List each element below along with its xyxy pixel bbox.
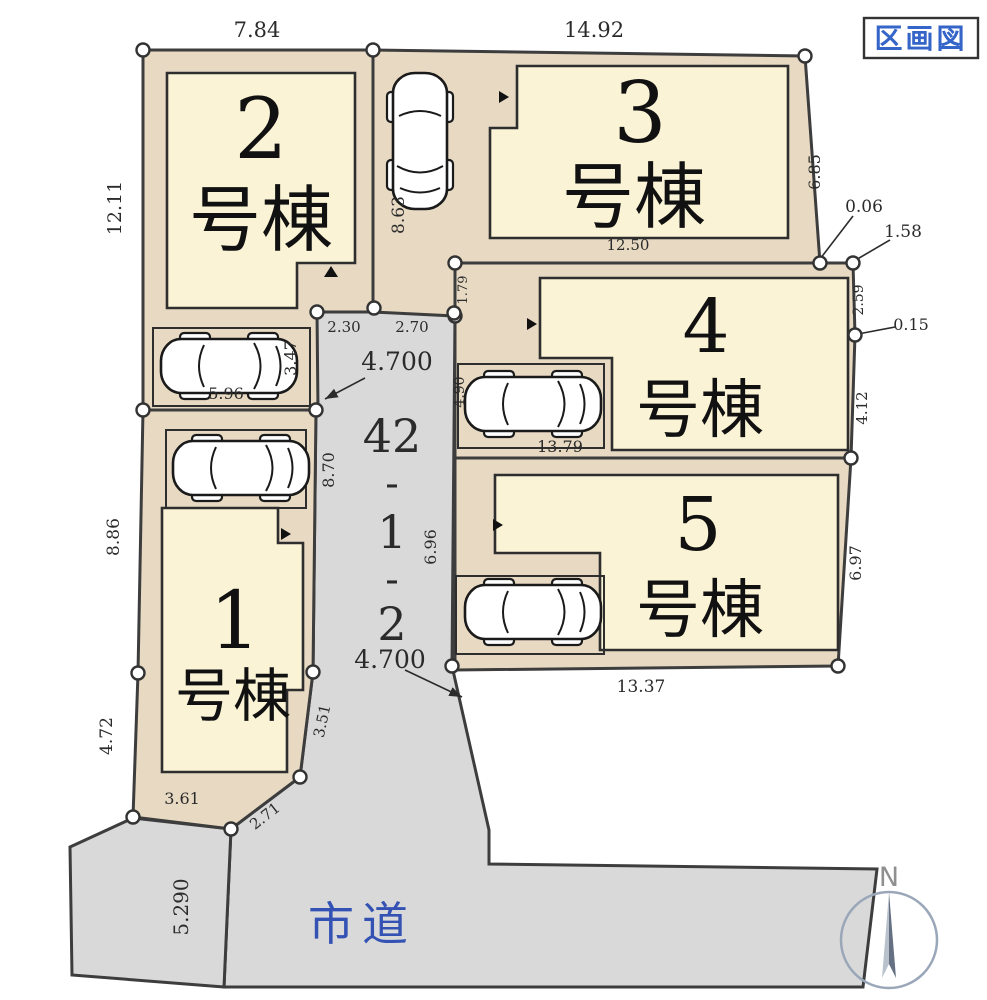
dim-drive-width-bottom: 4.700 [354, 645, 426, 674]
survey-point [845, 452, 858, 465]
center-lot-line1: 42 [363, 409, 422, 463]
dim-left-lot4-b: 4.90 [452, 376, 468, 407]
center-lot-line2: - [385, 461, 399, 507]
dim-drive-right: 6.96 [421, 529, 440, 565]
compass-needle-dark [889, 892, 896, 978]
center-lot-line3: 1 [377, 505, 406, 559]
lot4-suffix: 号棟 [636, 374, 764, 448]
page-title: 区画図 [874, 22, 967, 55]
compass-north-label: N [879, 862, 899, 893]
survey-point [814, 257, 827, 270]
survey-point [448, 307, 461, 320]
leader-line-006 [820, 216, 853, 259]
survey-point [294, 771, 307, 784]
dim-parking-side: 3.47 [281, 340, 300, 376]
dim-top-lot2: 7.84 [234, 18, 281, 42]
lot3-suffix: 号棟 [562, 155, 706, 239]
road-left-area [70, 818, 231, 987]
survey-point [137, 44, 150, 57]
dim-left-lot4-a: 1.79 [456, 276, 471, 305]
lot4-number: 4 [682, 284, 729, 370]
survey-point [127, 811, 140, 824]
dim-bottom-lot1: 3.61 [164, 789, 200, 808]
lot2-suffix: 号棟 [189, 178, 333, 262]
survey-point [446, 660, 459, 673]
car-icon-top [387, 73, 453, 209]
dim-right-lot4-a: 2.59 [851, 284, 867, 315]
dim-left-lot1-a: 8.86 [104, 518, 124, 556]
dim-drive-seg-a: 2.30 [327, 318, 360, 336]
lot2-number: 2 [234, 80, 287, 178]
dim-left-lot2: 12.11 [104, 181, 126, 235]
survey-point [311, 306, 324, 319]
dim-drive-left: 8.70 [319, 452, 338, 488]
survey-point [137, 404, 150, 417]
dim-offset-158: 1.58 [884, 222, 922, 242]
dim-offset-006: 0.06 [845, 197, 883, 217]
survey-point [832, 660, 845, 673]
road-label: 市道 [308, 897, 416, 951]
title-box: 区画図 [864, 18, 978, 58]
lot-plan-svg: 2 号棟 3 号棟 4 号棟 5 号棟 1 号棟 42 - 1 - 2 7.84… [0, 0, 987, 1000]
dim-parking-width: 5.96 [208, 384, 244, 403]
compass-needle-light [882, 892, 889, 978]
dim-bottom-lot4: 13.79 [537, 437, 583, 456]
survey-point [132, 667, 145, 680]
dim-right-lot3: 6.85 [805, 154, 824, 190]
dim-drive-width-top: 4.700 [361, 347, 433, 376]
dim-right-lot4-b: 4.12 [853, 391, 871, 424]
dim-left-lot1-b: 4.72 [97, 717, 117, 755]
survey-point [225, 823, 238, 836]
survey-point [307, 666, 320, 679]
dim-top-lot3: 14.92 [564, 18, 624, 42]
dim-offset-015: 0.15 [893, 315, 929, 334]
survey-point [449, 257, 462, 270]
survey-point [847, 257, 860, 270]
lot5-number: 5 [674, 482, 721, 568]
lot3-number: 3 [613, 64, 666, 162]
leader-line-015 [858, 327, 895, 334]
leader-line-158 [854, 240, 890, 261]
dim-road-left: 5.290 [169, 878, 193, 935]
survey-point [310, 404, 323, 417]
lot-plan-canvas: 2 号棟 3 号棟 4 号棟 5 号棟 1 号棟 42 - 1 - 2 7.84… [0, 0, 987, 1000]
dim-drive-top: 8.63 [389, 196, 409, 234]
lot1-suffix: 号棟 [175, 662, 291, 730]
car-icon-lot4 [465, 371, 601, 437]
lot5-suffix: 号棟 [636, 574, 764, 648]
dim-drive-seg-b: 2.70 [395, 318, 428, 336]
car-icon-lot1 [173, 435, 309, 501]
dim-bottom-lot5: 13.37 [617, 677, 666, 697]
center-lot-line5: 2 [377, 597, 406, 651]
dim-right-lot5: 6.97 [846, 545, 865, 581]
lot1-number: 1 [210, 574, 261, 667]
survey-point [367, 44, 380, 57]
dim-bottom-lot3: 12.50 [607, 236, 650, 254]
survey-point [368, 302, 381, 315]
survey-point [799, 50, 812, 63]
survey-point [849, 329, 862, 342]
car-icon-lot5 [465, 579, 601, 645]
